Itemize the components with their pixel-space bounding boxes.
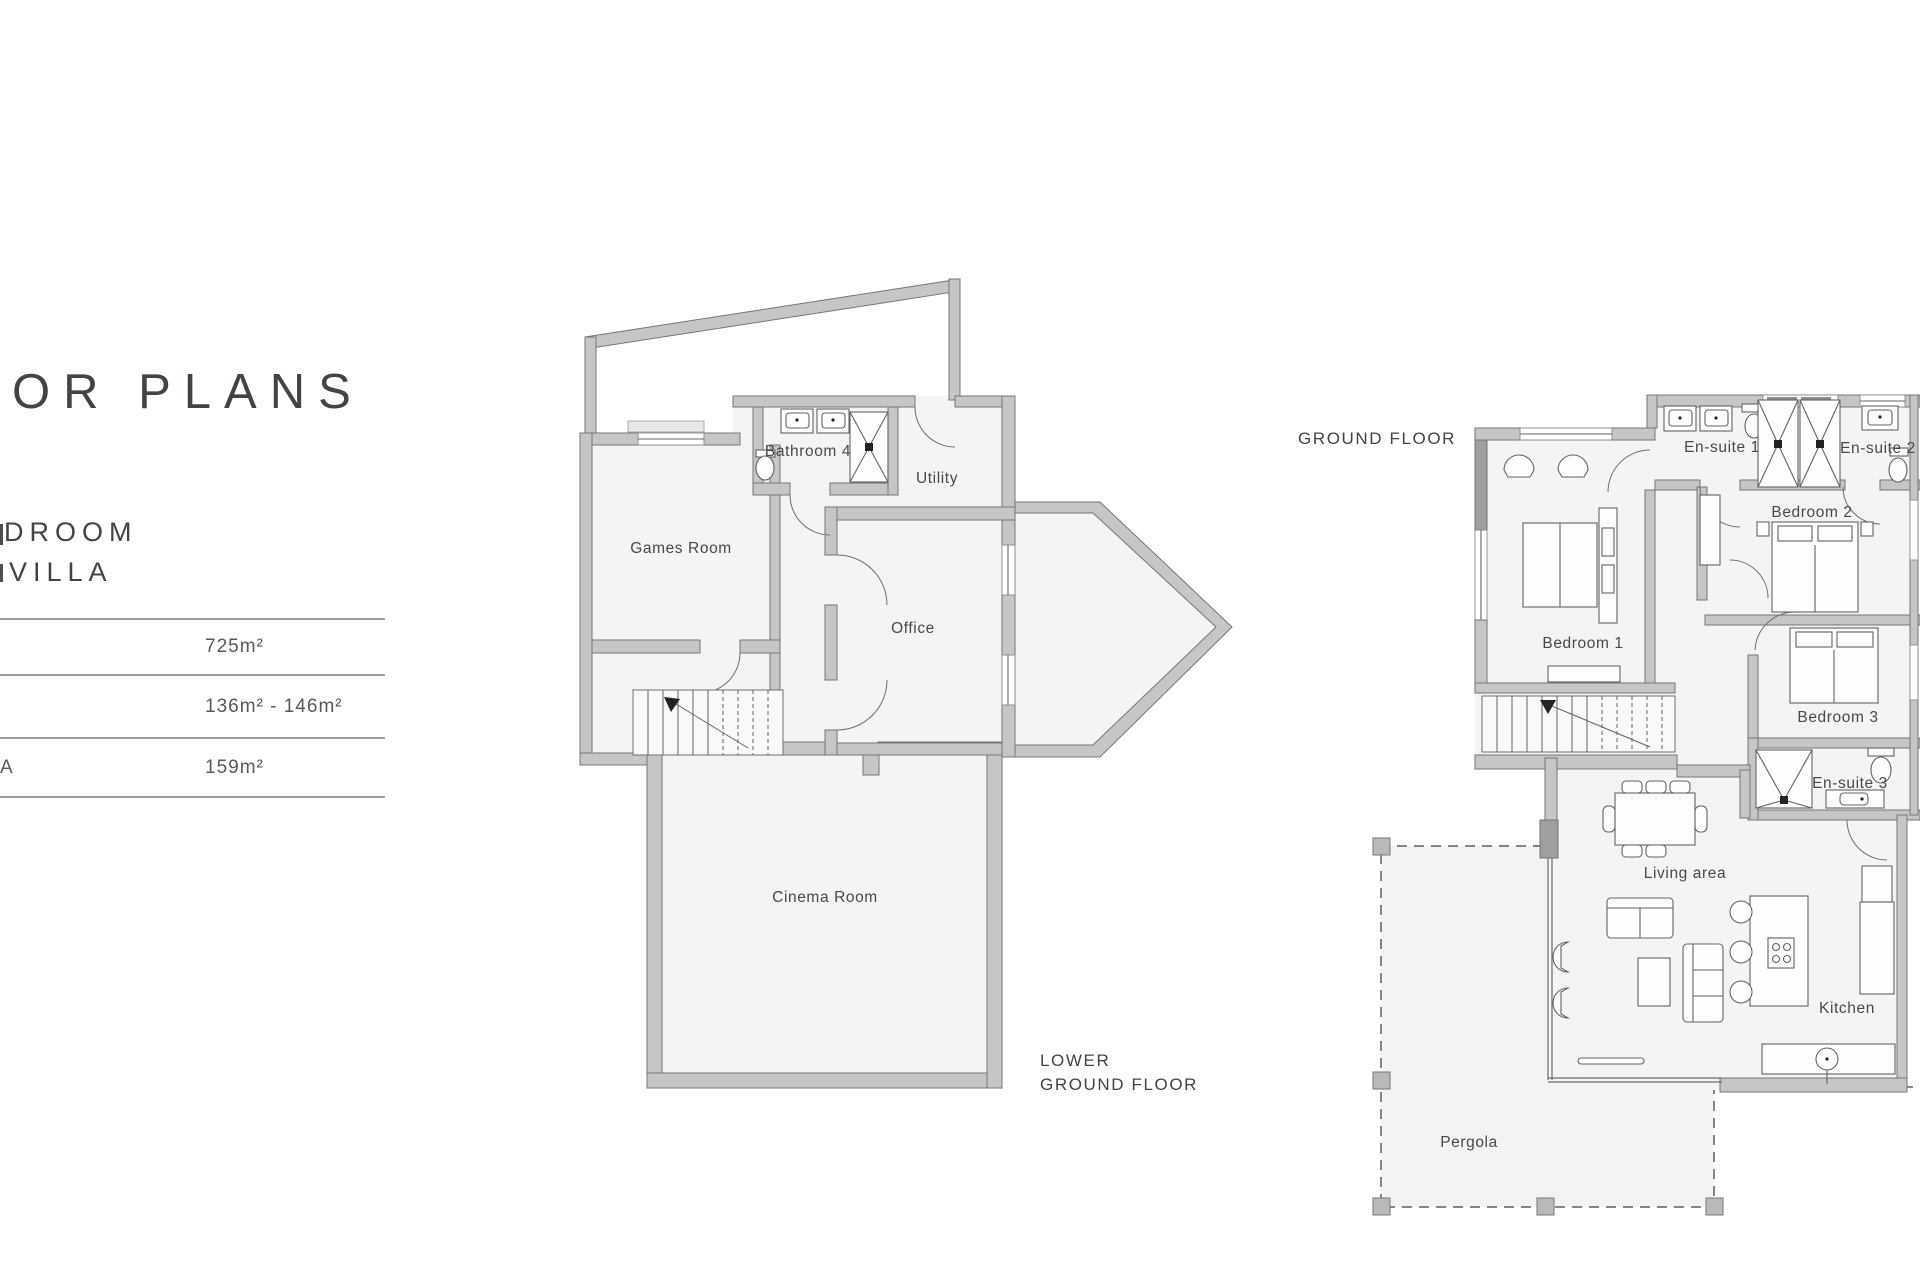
pergola-post [1706, 1198, 1723, 1215]
bedroom3-window [1910, 645, 1918, 700]
dining-chair [1646, 781, 1666, 793]
window-sill [628, 421, 704, 432]
ensuite3-bottom-wall [1748, 810, 1920, 820]
band-top-wall-left [733, 396, 915, 407]
stair-retaining-wall [1475, 755, 1677, 769]
ground-floor-title: GROUND FLOOR [1298, 429, 1456, 448]
pillow [1796, 632, 1832, 647]
bath-utility-divider [888, 407, 898, 495]
dining-chair [1622, 845, 1642, 857]
room-label-bedroom1: Bedroom 1 [1542, 635, 1623, 652]
room-label-office: Office [891, 620, 935, 637]
media-shelf [1602, 528, 1614, 556]
room-label-living: Living area [1644, 865, 1726, 882]
ensuite-band-bottom-a [1655, 480, 1700, 490]
office-left-wall-c [825, 730, 837, 755]
fridge [1862, 866, 1892, 902]
hall-bedroom1-wall [1645, 490, 1655, 683]
pergola-post [1373, 838, 1390, 855]
games-bottom-wall-a [592, 640, 700, 653]
pergola-post [1373, 1072, 1390, 1089]
cinema-left-wall [647, 742, 662, 1088]
office-left-wall-a [825, 507, 837, 555]
media-shelf [1602, 565, 1614, 593]
lower-floor-title-line1: LOWER [1040, 1051, 1110, 1070]
cinema-notch [863, 755, 879, 775]
floor-plans-page: OR PLANS DROOM VILLA 725m² 136m² - 146m²… [0, 0, 1920, 1280]
pergola-post [1537, 1198, 1554, 1215]
room-label-pergola: Pergola [1440, 1134, 1498, 1151]
room-label-cinema: Cinema Room [772, 889, 878, 906]
bar-stool [1730, 901, 1752, 923]
room-label-utility: Utility [916, 470, 958, 487]
bedroom2-window [1910, 500, 1918, 560]
room-label-bedroom2: Bedroom 2 [1771, 504, 1852, 521]
bar-stool [1730, 981, 1752, 1003]
dining-table [1615, 793, 1695, 845]
office-bottom-wall [825, 743, 1015, 755]
right-outer-wall-upper [1910, 395, 1918, 815]
ground-staircase [1482, 696, 1675, 752]
ground-floor-plan: En-suite 1 En-suite 2 Bedroom 2 Bedroom … [1298, 395, 1920, 1215]
living-right-wall [1897, 815, 1907, 1090]
lower-ground-floor-plan: Bathroom 4 Utility Games Room Office Cin… [580, 279, 1232, 1094]
room-label-ensuite3: En-suite 3 [1812, 775, 1888, 792]
lower-staircase [633, 690, 783, 755]
bar-stool [1730, 941, 1752, 963]
pillow [1778, 526, 1812, 541]
room-label-bathroom4: Bathroom 4 [765, 443, 851, 460]
bedroom1-left-wall-dark [1475, 440, 1487, 530]
living-bottom-wall [1720, 1078, 1907, 1092]
room-label-kitchen: Kitchen [1819, 1000, 1875, 1017]
wardrobe [1700, 495, 1720, 565]
bedroom1-left-wall [1475, 620, 1487, 693]
office-top-wall [825, 507, 1015, 520]
sink-basin [1840, 793, 1868, 805]
bedroom3-furniture [1790, 628, 1878, 703]
bench [1548, 666, 1620, 682]
cinema-bottom-wall [647, 1073, 1002, 1088]
games-bottom-wall-b [740, 640, 780, 653]
living-left-upper-wall [1545, 758, 1557, 822]
pergola-post [1373, 1198, 1390, 1215]
dining-chair [1603, 806, 1615, 832]
room-label-bedroom3: Bedroom 3 [1797, 709, 1878, 726]
dining-chair [1646, 845, 1666, 857]
room-label-ensuite1: En-suite 1 [1684, 439, 1760, 456]
coffee-table [1638, 958, 1670, 1006]
band-left-wall [1647, 395, 1657, 428]
bedroom3-left-wall [1748, 655, 1758, 745]
ensuite3-top-wall [1748, 738, 1920, 748]
bedside-table [1861, 522, 1873, 536]
terrace-left-wall [585, 337, 596, 438]
glass-corner-post [1540, 820, 1558, 858]
bedroom2-furniture [1757, 522, 1873, 612]
dining-chair [1622, 781, 1642, 793]
hall-living-connector [1740, 770, 1750, 818]
bedroom2-3-divider [1705, 615, 1920, 625]
cinema-right-wall [987, 755, 1002, 1088]
hob [1768, 938, 1794, 968]
bedside-table [1757, 522, 1769, 536]
left-outer-wall [580, 433, 592, 765]
room-label-games: Games Room [630, 540, 732, 557]
room-label-ensuite2: En-suite 2 [1840, 440, 1916, 457]
bedroom1-bottom-wall [1475, 683, 1675, 693]
living-top-wall [1677, 765, 1750, 777]
dining-chair [1670, 781, 1690, 793]
sofa [1683, 944, 1723, 1022]
dining-chair [1695, 806, 1707, 832]
pillow [1837, 632, 1873, 647]
terrace-right-wall [949, 279, 960, 400]
toilet-tank [1868, 748, 1894, 756]
floor-plan-canvas: Bathroom 4 Utility Games Room Office Cin… [0, 0, 1920, 1280]
lower-floor-title-line2: GROUND FLOOR [1040, 1075, 1198, 1094]
kitchen-counter [1860, 902, 1894, 994]
pillow [1818, 526, 1852, 541]
office-left-wall-b [825, 605, 837, 680]
tv-console [1578, 1058, 1644, 1064]
bathroom-bottom-wall-a [753, 483, 790, 495]
toilet-icon [1889, 458, 1907, 482]
